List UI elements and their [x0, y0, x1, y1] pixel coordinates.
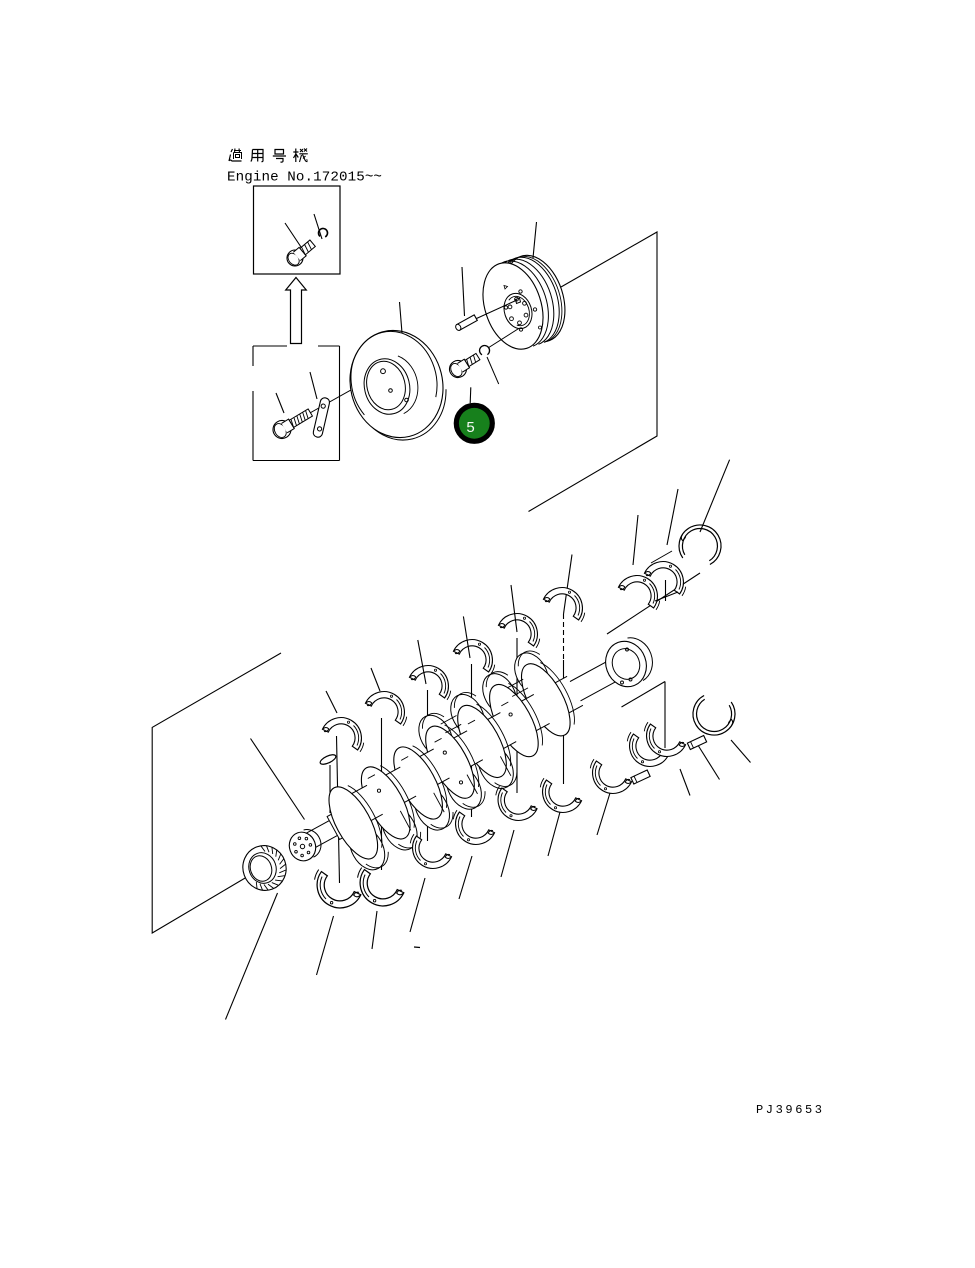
svg-text:PJ39653: PJ39653: [756, 1103, 825, 1117]
svg-text:5: 5: [466, 419, 474, 436]
svg-text:Engine No.172015~~: Engine No.172015~~: [227, 170, 382, 186]
